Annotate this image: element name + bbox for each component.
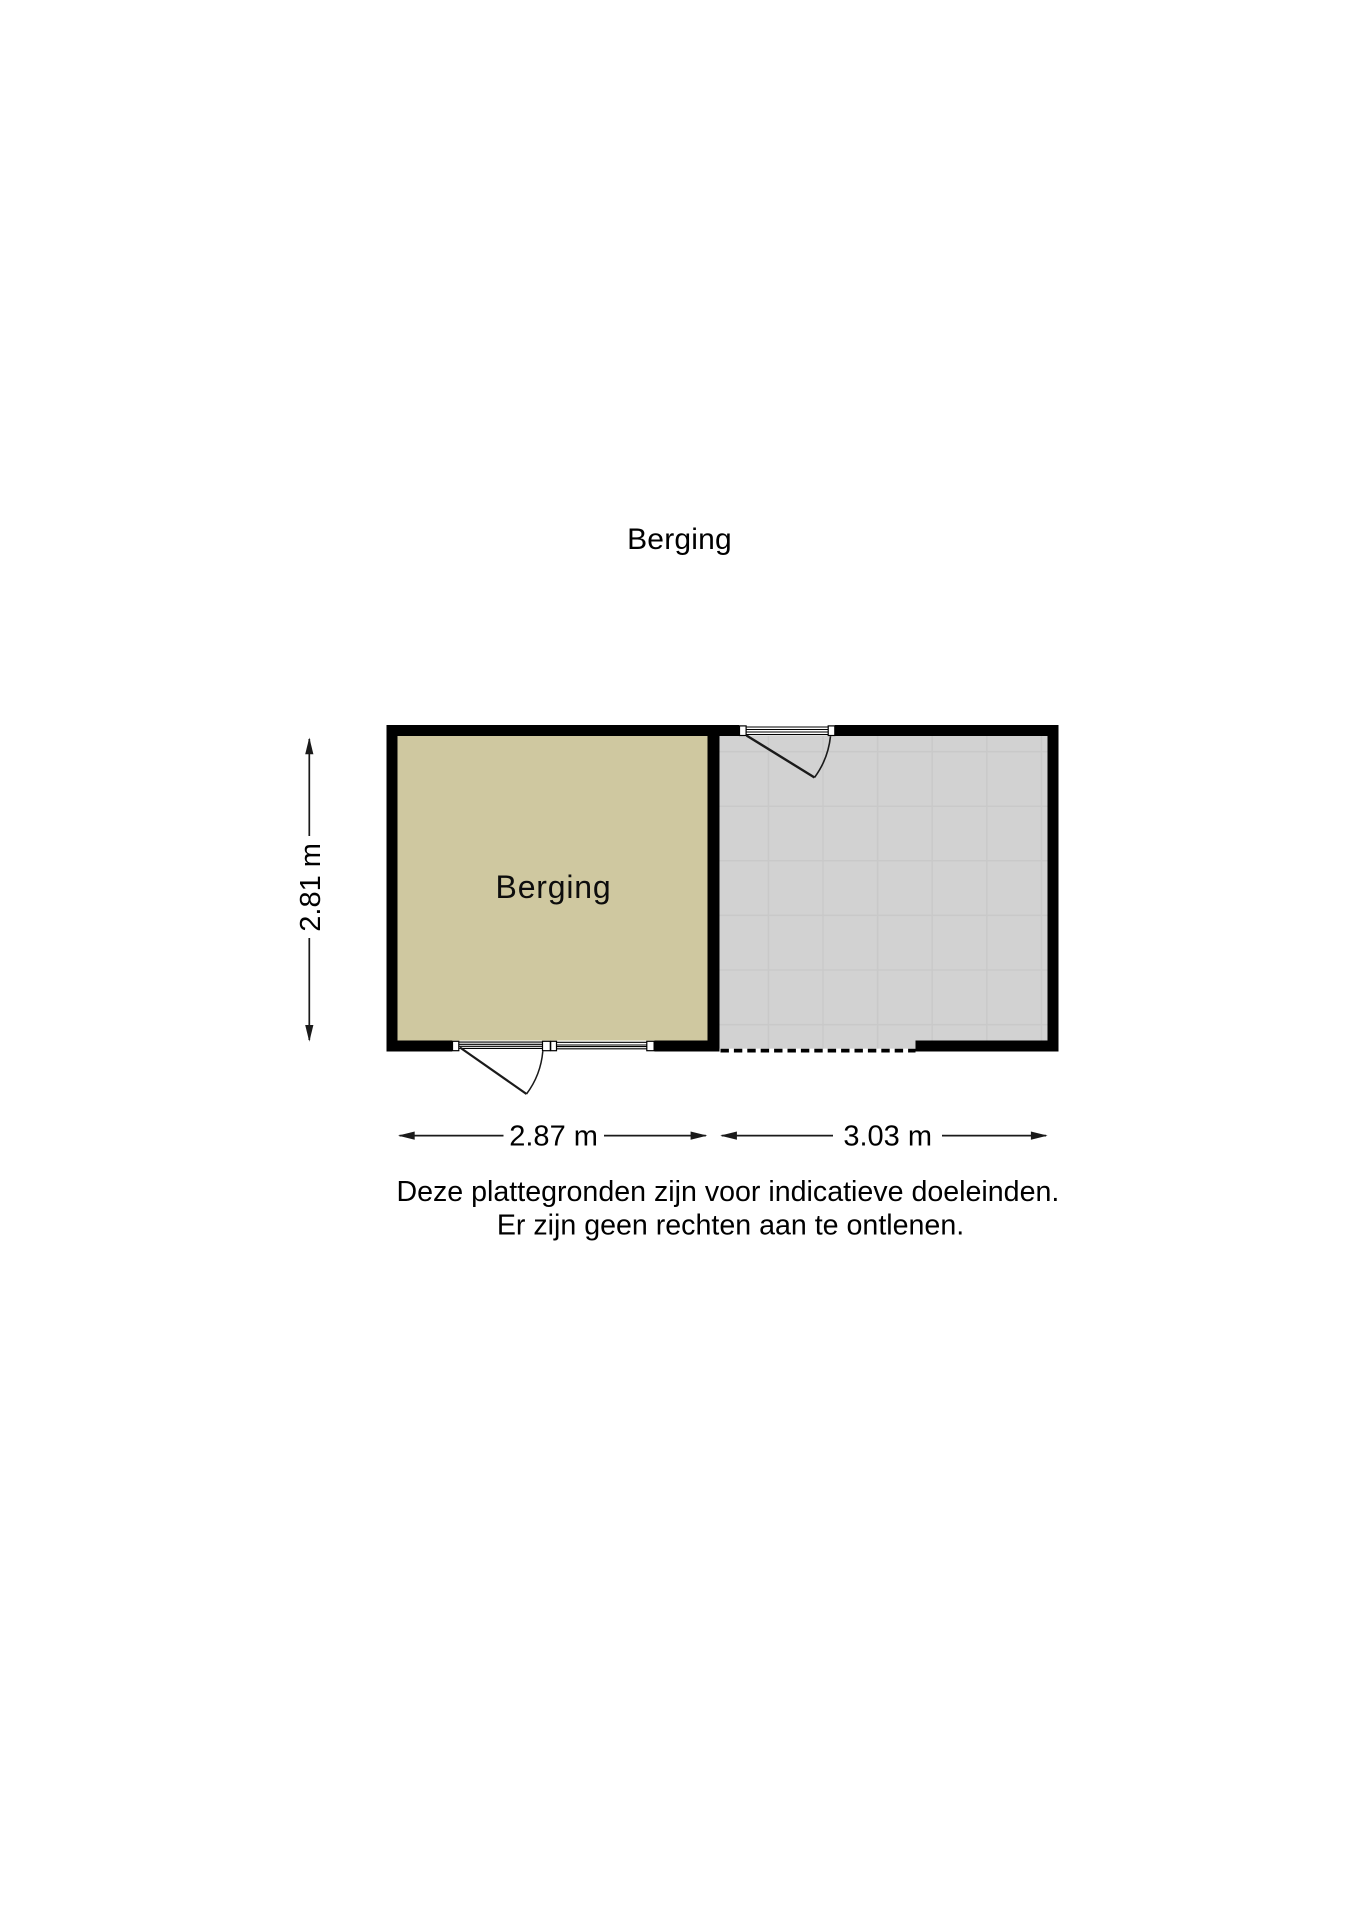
- svg-text:Berging: Berging: [496, 869, 612, 905]
- svg-text:Berging: Berging: [627, 523, 732, 556]
- svg-text:2.81 m: 2.81 m: [295, 843, 327, 932]
- svg-text:Er zijn geen rechten aan te on: Er zijn geen rechten aan te ontlenen.: [497, 1210, 964, 1242]
- svg-text:3.03 m: 3.03 m: [843, 1120, 932, 1152]
- svg-text:2.87 m: 2.87 m: [509, 1120, 598, 1152]
- svg-text:Deze plattegronden zijn voor i: Deze plattegronden zijn voor indicatieve…: [396, 1176, 1059, 1208]
